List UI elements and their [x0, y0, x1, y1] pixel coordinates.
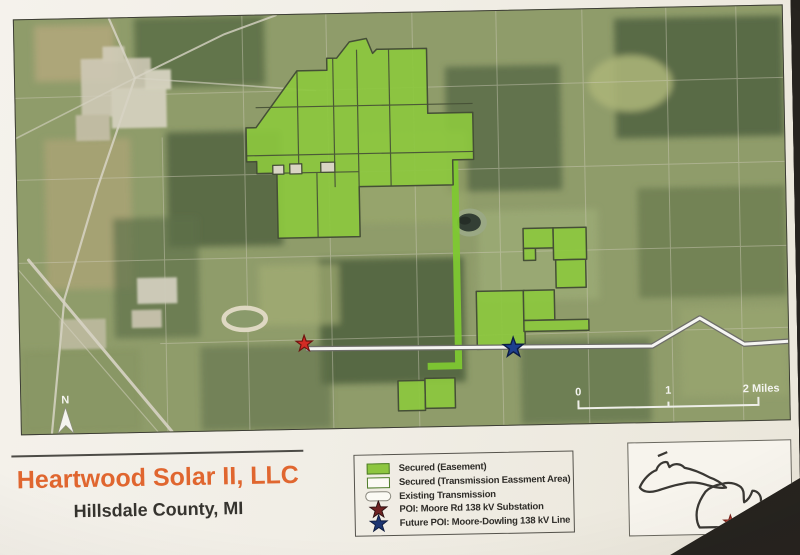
main-map: N 0 1 2 Miles	[13, 4, 791, 435]
parcel-east	[523, 228, 553, 249]
transmission-easement-swatch-icon	[365, 477, 391, 489]
svg-text:0: 0	[575, 386, 581, 398]
inset-location-star	[724, 515, 738, 528]
page-title: Heartwood Solar II, LLC	[12, 461, 305, 496]
svg-text:1: 1	[665, 385, 671, 397]
michigan-outline	[639, 450, 761, 528]
title-block: Heartwood Solar II, LLC Hillsdale County…	[11, 450, 304, 524]
page-subtitle: Hillsdale County, MI	[12, 497, 304, 524]
future-poi-star-icon	[366, 514, 392, 534]
map-document-photo: N 0 1 2 Miles Heartwood Solar II, LLC Hi…	[0, 0, 800, 555]
north-label: N	[61, 394, 69, 406]
oval-track	[224, 308, 266, 331]
secured-easement-swatch-icon	[365, 463, 391, 475]
title-divider	[11, 450, 303, 458]
legend-item-future-poi: Future POI: Moore-Dowling 138 kV Line	[366, 514, 568, 531]
svg-text:2 Miles: 2 Miles	[743, 382, 780, 395]
printed-map-page: N 0 1 2 Miles Heartwood Solar II, LLC Hi…	[0, 0, 800, 555]
legend: Secured (Easement) Secured (Transmission…	[353, 451, 575, 537]
locator-inset	[627, 439, 793, 536]
